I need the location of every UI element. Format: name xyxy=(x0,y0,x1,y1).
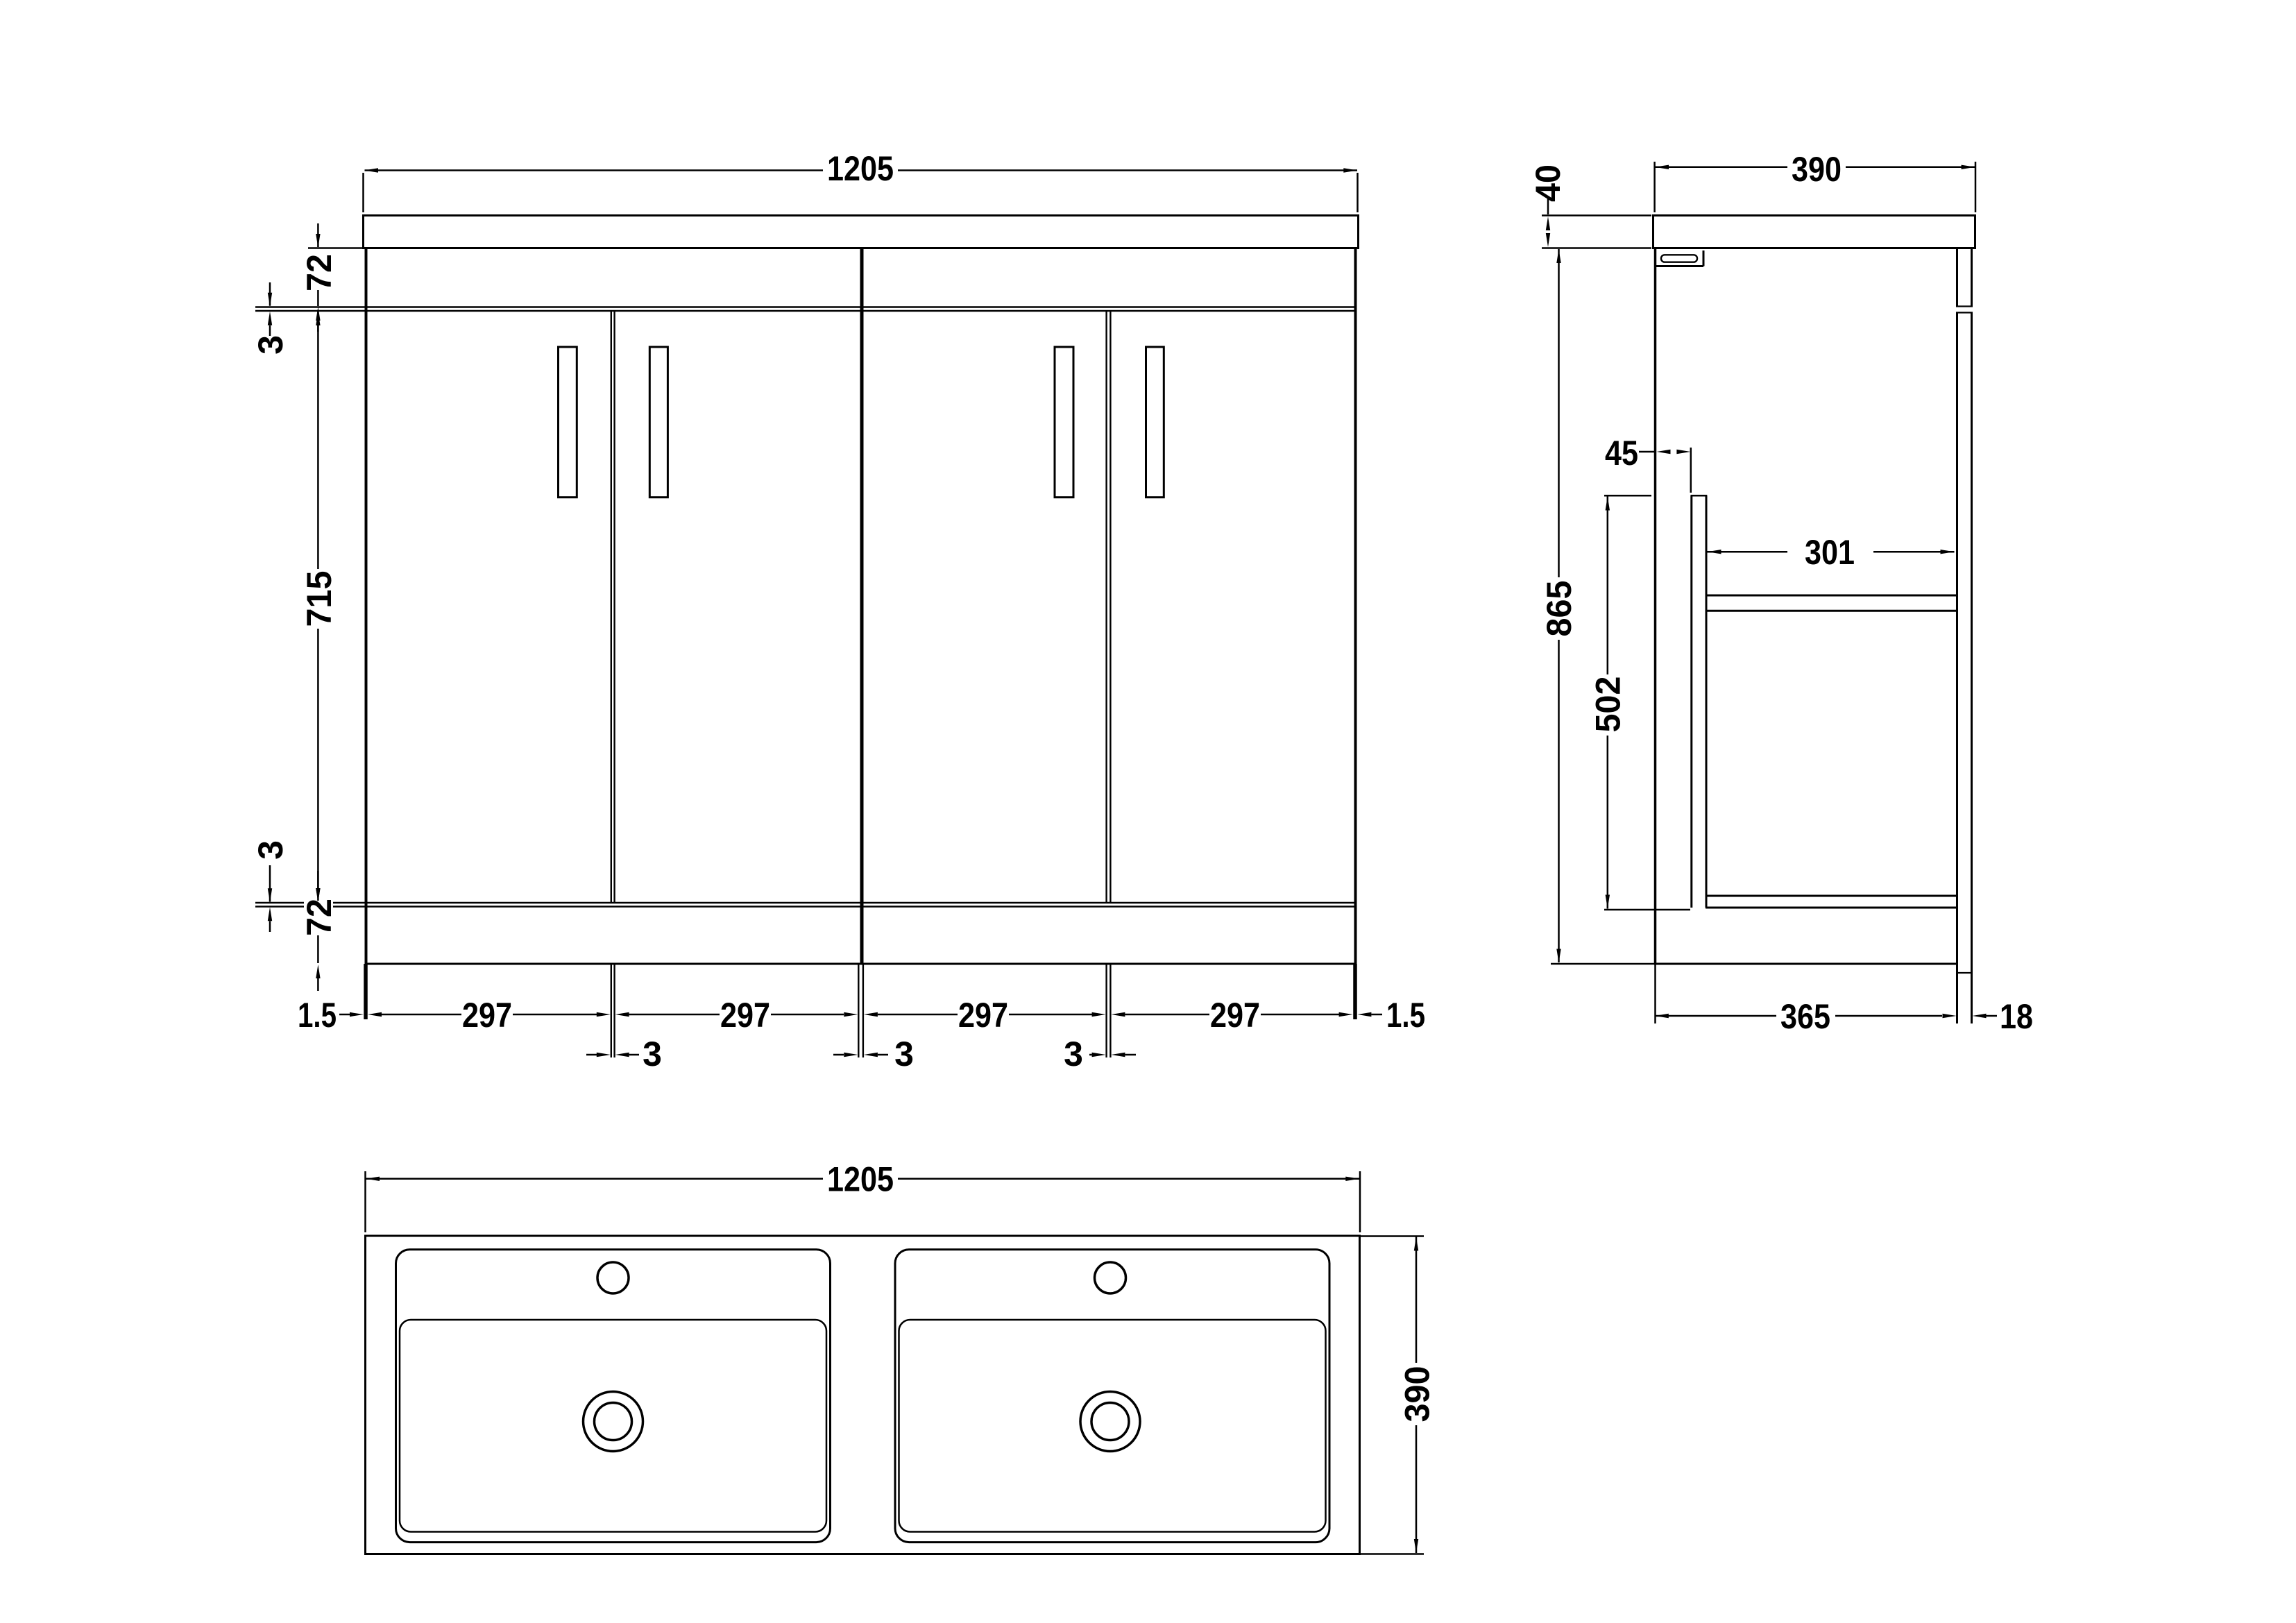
svg-text:715: 715 xyxy=(300,571,339,627)
svg-text:3: 3 xyxy=(643,1035,662,1073)
svg-text:72: 72 xyxy=(300,254,339,291)
svg-text:40: 40 xyxy=(1529,164,1567,202)
svg-text:3: 3 xyxy=(251,840,290,860)
svg-text:297: 297 xyxy=(720,996,770,1035)
svg-text:297: 297 xyxy=(1210,996,1260,1035)
svg-text:865: 865 xyxy=(1540,581,1579,637)
svg-text:3: 3 xyxy=(894,1035,914,1073)
svg-text:502: 502 xyxy=(1589,677,1628,733)
svg-text:1.5: 1.5 xyxy=(1386,996,1425,1035)
svg-text:3: 3 xyxy=(1064,1035,1083,1073)
svg-text:3: 3 xyxy=(251,335,290,355)
svg-text:72: 72 xyxy=(300,899,339,936)
svg-text:390: 390 xyxy=(1792,150,1842,189)
svg-text:365: 365 xyxy=(1780,997,1830,1036)
svg-text:390: 390 xyxy=(1398,1366,1437,1422)
svg-text:1.5: 1.5 xyxy=(298,996,337,1035)
svg-text:301: 301 xyxy=(1805,533,1855,572)
svg-text:1205: 1205 xyxy=(827,149,894,188)
svg-text:297: 297 xyxy=(958,996,1008,1035)
svg-text:297: 297 xyxy=(462,996,512,1035)
svg-text:1205: 1205 xyxy=(827,1160,894,1199)
svg-text:45: 45 xyxy=(1605,434,1638,473)
svg-text:18: 18 xyxy=(2000,997,2033,1036)
